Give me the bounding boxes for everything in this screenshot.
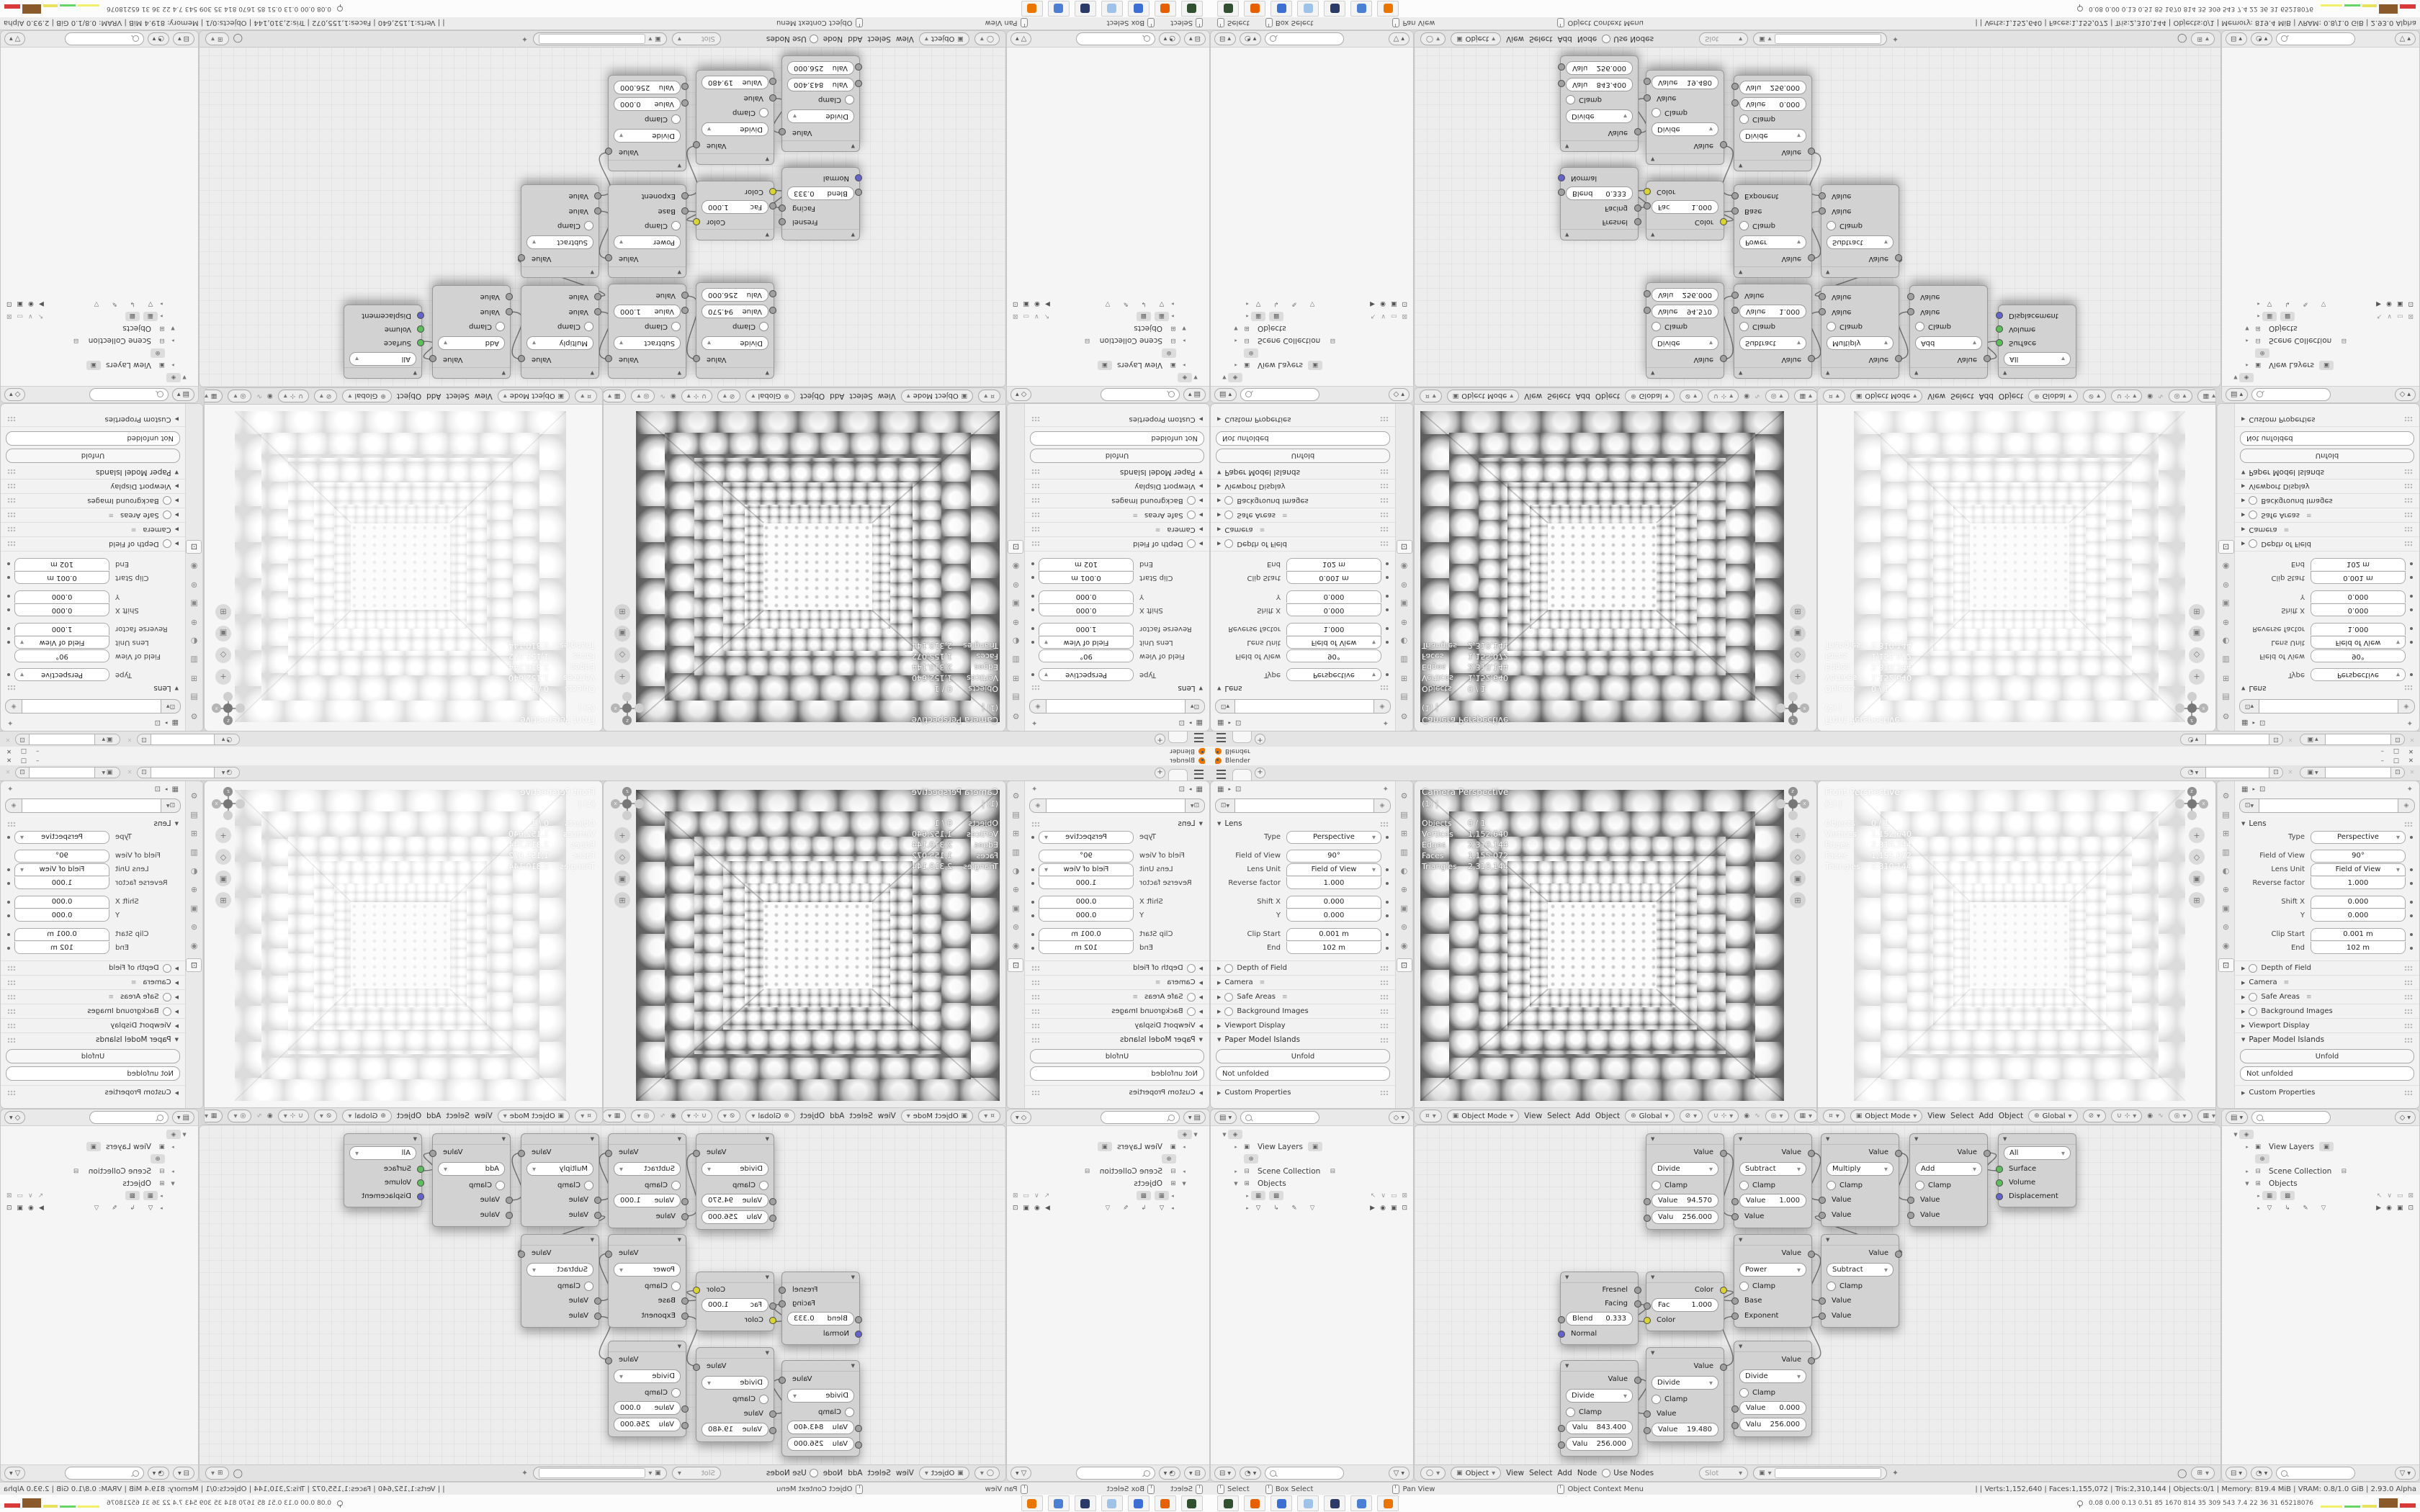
animate-dot-icon[interactable] <box>2410 595 2413 598</box>
animate-dot-icon[interactable] <box>1031 563 1034 566</box>
input-socket[interactable] <box>1907 308 1914 315</box>
editor-type-icon[interactable]: ▦ <box>1196 719 1203 727</box>
world-icon[interactable]: ⊕ <box>2219 883 2233 896</box>
cursor-icon[interactable]: ↖ <box>1044 1192 1050 1200</box>
datablock-name-field[interactable] <box>1046 699 1185 714</box>
axis-z-icon[interactable]: z <box>2187 716 2197 725</box>
unlink-scene-button[interactable]: ✕ <box>2285 734 2295 744</box>
output-socket[interactable] <box>694 142 701 149</box>
node-header[interactable]: ▼ <box>696 1348 774 1359</box>
input-socket[interactable] <box>1558 1441 1565 1449</box>
mode-dropdown[interactable]: ▣Object Mode▼ <box>498 1110 570 1122</box>
menu-node[interactable]: Node <box>1577 1469 1597 1477</box>
shader-type-dropdown[interactable]: ▣Object▼ <box>919 32 969 45</box>
property-field[interactable]: Field of View ▼ <box>2311 636 2406 649</box>
node-header[interactable]: ▼ <box>433 367 510 378</box>
collapsed-panel-header[interactable]: ▶ Safe Areas ≡ <box>1025 508 1209 523</box>
outliner-root-row[interactable]: ▼◈ <box>2222 372 2419 384</box>
unlink-scene-button[interactable]: ✕ <box>125 768 135 778</box>
mode-dropdown[interactable]: ▣Object Mode▼ <box>901 390 974 402</box>
falloff-icon[interactable]: ∿ <box>256 392 262 400</box>
view-layer-icon[interactable]: ▥ <box>1397 654 1412 666</box>
subtract-2-node[interactable]: ▼ Value Subtract▼ Clamp Value Value <box>1821 184 1899 278</box>
menu-view[interactable]: View <box>878 392 896 400</box>
volume-socket[interactable] <box>1996 325 2003 333</box>
menu-node[interactable]: Node <box>823 35 843 43</box>
output-icon[interactable]: ⊞ <box>1397 827 1412 840</box>
node-canvas[interactable]: ▼ Value Divide▼ Clamp Value94.570 Valu25… <box>1415 47 2220 387</box>
fac-field[interactable]: Fac1.000 <box>702 1298 768 1312</box>
camera-data-icon[interactable]: ⊡ <box>2218 540 2234 554</box>
color-output-socket[interactable] <box>694 1287 701 1294</box>
input-socket[interactable] <box>1644 94 1651 102</box>
animate-dot-icon[interactable] <box>1031 628 1034 631</box>
unfold-status-field[interactable]: Not unfolded <box>2240 1066 2414 1081</box>
add-workspace-button[interactable]: + <box>1255 768 1265 778</box>
axis-gizmo[interactable]: z x <box>2175 692 2208 725</box>
panel-drag-dots[interactable] <box>7 484 16 489</box>
chevron-icon[interactable]: ∨ <box>28 1192 33 1200</box>
panel-drag-dots[interactable] <box>1380 513 1389 518</box>
unlink-view-layer-button[interactable]: ✕ <box>2407 734 2417 744</box>
input-socket[interactable] <box>856 1425 863 1432</box>
eye-icon[interactable]: ◉ <box>28 301 34 308</box>
menu-object[interactable]: Object <box>397 1112 421 1120</box>
output-socket[interactable] <box>1808 1357 1815 1364</box>
camera-data-icon[interactable]: ⊡ <box>1008 540 1024 554</box>
output-socket[interactable] <box>1808 148 1815 156</box>
chevron-icon[interactable]: ∨ <box>1034 313 1039 320</box>
menu-select[interactable]: Select <box>1547 392 1570 400</box>
editor-type-dropdown[interactable]: ⊟▼ <box>173 32 194 45</box>
constraints-icon[interactable]: ◉ <box>1397 560 1412 572</box>
terminal-icon[interactable] <box>1181 1495 1203 1511</box>
panel-checkbox[interactable] <box>2249 497 2257 505</box>
property-field[interactable]: Field of View ▼ <box>14 863 109 876</box>
panel-drag-dots[interactable] <box>1031 484 1040 489</box>
copy-view-layer-button[interactable]: ⊡ <box>2391 734 2405 745</box>
pin-icon[interactable]: ✦ <box>1892 1469 1899 1477</box>
fac-field[interactable]: Fac1.000 <box>1652 200 1718 214</box>
input-socket[interactable] <box>770 1215 777 1222</box>
3d-viewport-front[interactable]: Front Perspective (1) | Objects 0 / 1 Ve… <box>1817 387 2216 732</box>
use-nodes-toggle[interactable]: Use Nodes <box>766 35 818 43</box>
property-field[interactable]: Field of View ▼ <box>1286 863 1381 876</box>
constraints-icon[interactable]: ◉ <box>1397 940 1412 952</box>
panel-drag-dots[interactable] <box>1031 417 1040 422</box>
pin-icon[interactable]: ✦ <box>521 35 528 43</box>
custom-properties-header[interactable]: ▶ Custom Properties <box>2235 1085 2419 1099</box>
menu-hamburger-icon[interactable] <box>1216 770 1226 779</box>
display-mode-dropdown[interactable]: ◔▼ <box>148 1467 169 1480</box>
output-socket[interactable] <box>1720 1364 1727 1371</box>
panel-drag-dots[interactable] <box>2404 417 2413 422</box>
clamp-checkbox[interactable] <box>1739 323 1749 332</box>
property-field[interactable]: 0.000 ▼ <box>1039 909 1134 922</box>
material-selector[interactable]: ▣▼ <box>533 32 667 45</box>
input-socket[interactable] <box>1731 307 1739 314</box>
snap-target-dropdown[interactable]: ⊘▼ <box>717 390 741 402</box>
property-field[interactable]: 102 m ▼ <box>1286 942 1381 954</box>
panel-drag-dots[interactable] <box>7 966 16 971</box>
chevron-icon[interactable]: ∨ <box>1381 1192 1386 1200</box>
node-header[interactable]: ▼ <box>1646 229 1724 240</box>
input-socket[interactable] <box>682 1405 689 1413</box>
collapsed-panel-header[interactable]: ▶ Viewport Display ≡ <box>2235 1018 2419 1032</box>
axis-gizmo[interactable]: z x <box>611 787 644 820</box>
input-socket[interactable] <box>856 1441 863 1449</box>
copy-scene-button[interactable]: ⊡ <box>2269 734 2283 745</box>
property-field[interactable]: 1.000 ▼ <box>1286 623 1381 635</box>
invert-node[interactable]: ▼ Color Fac1.000 Color <box>1646 1272 1724 1331</box>
operation-dropdown[interactable]: Add▼ <box>1915 336 1982 350</box>
input-socket[interactable] <box>856 80 863 87</box>
menu-object[interactable]: Object <box>1999 1112 2023 1120</box>
editor-type-icon[interactable]: ▦ <box>1217 719 1224 727</box>
power-1-node[interactable]: ▼ Value Power▼ Clamp Base Exponent <box>608 1234 686 1328</box>
copy-view-layer-button[interactable]: ⊡ <box>15 767 29 778</box>
viewport-canvas[interactable]: Camera Perspective (1) | Objects 0 / 1 V… <box>604 404 1005 731</box>
output-icon[interactable]: ⊞ <box>1009 672 1023 685</box>
multiply-1-node[interactable]: ▼ Value Multiply▼ Clamp Value Value <box>521 1133 599 1227</box>
overlays-dropdown[interactable]: ▦▼ <box>1794 390 1816 402</box>
collapsed-panel-header[interactable]: ▶ Viewport Display ≡ <box>1025 480 1209 494</box>
menu-view[interactable]: View <box>1524 392 1542 400</box>
outliner-search[interactable] <box>2251 1111 2331 1124</box>
objects-collection-row[interactable]: ▼⊞ Objects <box>1211 1177 1413 1189</box>
cursor-icon[interactable]: ↖ <box>2377 1192 2383 1200</box>
constraints-icon[interactable]: ◉ <box>2219 560 2233 572</box>
input-socket[interactable] <box>770 202 777 210</box>
panel-drag-dots[interactable] <box>2404 1038 2413 1043</box>
input-socket[interactable] <box>856 189 863 196</box>
tool-icon[interactable]: ⚙ <box>187 790 202 802</box>
workspace-tab[interactable] <box>1232 732 1252 743</box>
editor-type-dropdown[interactable]: ¤▼ <box>1823 1110 1845 1122</box>
clamp-checkbox[interactable] <box>496 1181 505 1190</box>
object-icon[interactable]: ▣ <box>1009 902 1023 914</box>
unlink-view-layer-button[interactable]: ✕ <box>3 734 13 744</box>
input-socket[interactable] <box>595 192 602 199</box>
divide-4-node[interactable]: ▼ Value Divide▼ Clamp Value0.000 Valu256… <box>1734 1341 1812 1437</box>
node-value-field[interactable]: Valu256.000 <box>702 288 768 302</box>
displacement-socket[interactable] <box>418 1193 425 1200</box>
axis-minus-icon[interactable] <box>224 692 233 701</box>
menu-view[interactable]: View <box>896 1469 914 1477</box>
objects-collection-row[interactable]: ▼⊞ Objects <box>2222 323 2419 335</box>
clamp-checkbox[interactable] <box>671 115 681 125</box>
gizmos-dropdown[interactable]: ◎▼ <box>228 1110 251 1122</box>
object-row[interactable]: ▸▦ ▩ ↖∨ ▭⊠ <box>1211 310 1413 323</box>
output-target-dropdown[interactable]: All ▼ <box>2004 352 2071 366</box>
clamp-checkbox[interactable] <box>759 323 768 332</box>
image-viewer-icon[interactable] <box>1350 1 1372 17</box>
input-socket[interactable] <box>1558 1425 1565 1432</box>
node-value-field[interactable]: Value1.000 <box>614 305 681 318</box>
snap-target-dropdown[interactable]: ⊘▼ <box>1680 390 1703 402</box>
tool-icon[interactable]: ⚙ <box>2219 790 2233 802</box>
axis-gizmo[interactable]: z x <box>212 692 245 725</box>
collapsed-panel-header[interactable]: ▶ Background Images ≡ <box>2235 1004 2419 1018</box>
object-icon[interactable]: ▣ <box>187 902 202 914</box>
outliner-search[interactable] <box>2251 388 2331 401</box>
world-row[interactable]: ⊕ <box>2222 1153 2419 1165</box>
paper-model-panel-header[interactable]: ▼ Paper Model Islands <box>1211 1032 1395 1046</box>
menu-add[interactable]: Add <box>848 35 862 43</box>
tool-icon[interactable]: ⚙ <box>2219 710 2233 722</box>
render-off-icon[interactable]: ⊠ <box>1402 313 1407 320</box>
collapsed-panel-header[interactable]: ▶ Camera ≡ <box>1211 523 1395 537</box>
node-header[interactable]: ▼ <box>1821 1134 1899 1145</box>
panel-checkbox[interactable] <box>2249 511 2257 520</box>
proportional-edit-icon[interactable]: ◉ <box>267 1112 273 1120</box>
screen-icon[interactable]: ▭ <box>2397 313 2403 320</box>
camera-view-icon[interactable]: ▣ <box>2189 626 2205 642</box>
animate-dot-icon[interactable] <box>7 933 10 936</box>
scene-icon[interactable]: ◐ <box>1009 635 1023 647</box>
axis-minus-icon[interactable] <box>623 811 632 820</box>
property-field[interactable]: 0.000 ▼ <box>1039 896 1134 909</box>
falloff-icon[interactable]: ∿ <box>1754 392 1760 400</box>
object-row[interactable]: ▸▦ ▩ ↖∨ ▭⊠ <box>1007 310 1209 323</box>
material-selector[interactable]: ▣▼ <box>533 1467 667 1480</box>
output-socket[interactable] <box>779 1300 786 1308</box>
menu-select[interactable]: Select <box>1547 1112 1570 1120</box>
object-row[interactable]: ▸▦ ▩ ↖∨ ▭⊠ <box>1 310 198 323</box>
panel-drag-dots[interactable] <box>1380 966 1389 971</box>
scene-selector[interactable]: ◔▼ ⊡ ✕ <box>2180 767 2295 778</box>
output-socket[interactable] <box>1895 1251 1902 1258</box>
input-socket[interactable] <box>595 1313 602 1320</box>
output-socket[interactable] <box>606 356 613 363</box>
output-socket[interactable] <box>1634 1287 1641 1294</box>
normal-input-socket[interactable] <box>856 1331 863 1338</box>
input-socket[interactable] <box>595 1297 602 1305</box>
input-socket[interactable] <box>770 1410 777 1418</box>
subtract-1-node[interactable]: ▼ Value Subtract▼ Clamp Value1.000 Value <box>608 284 686 379</box>
clamp-checkbox[interactable] <box>845 96 854 105</box>
animate-dot-icon[interactable] <box>7 674 10 677</box>
operation-dropdown[interactable]: Divide▼ <box>787 1389 854 1403</box>
panel-drag-dots[interactable] <box>1380 980 1389 985</box>
property-field[interactable]: 102 m ▼ <box>14 942 109 954</box>
constraints-icon[interactable]: ◉ <box>1009 940 1023 952</box>
input-socket[interactable] <box>1644 307 1651 314</box>
snap-circle-icon[interactable]: ◯ <box>233 1468 243 1478</box>
select-arrow-icon[interactable]: ▶ <box>1370 1205 1375 1212</box>
color-output-socket[interactable] <box>694 218 701 225</box>
screen-icon[interactable]: ▣ <box>2397 301 2403 308</box>
property-field[interactable]: 102 m ▼ <box>2311 558 2406 570</box>
unfold-status-field[interactable]: Not unfolded <box>6 1066 180 1081</box>
workspace-tab[interactable] <box>1232 769 1252 780</box>
panel-checkbox[interactable] <box>1224 497 1233 505</box>
snap-target-dropdown[interactable]: ⊘▼ <box>314 390 338 402</box>
operation-dropdown[interactable]: Subtract▼ <box>614 1162 681 1176</box>
chevron-icon[interactable]: ∨ <box>2387 1192 2392 1200</box>
animate-dot-icon[interactable] <box>1031 609 1034 612</box>
axis-minus-icon[interactable] <box>224 811 233 820</box>
mode-dropdown[interactable]: ▣Object Mode▼ <box>1850 390 1923 402</box>
world-icon[interactable]: ⊕ <box>1397 616 1412 629</box>
screen-icon[interactable]: ▣ <box>2397 1205 2403 1212</box>
collapsed-panel-header[interactable]: ▶ Safe Areas ≡ <box>1 989 185 1004</box>
orientation-dropdown[interactable]: ⊕Global▼ <box>1625 390 1674 402</box>
node-value-field[interactable]: Value1.000 <box>1739 305 1806 318</box>
snap-magnet-toggle[interactable]: ∪⊹▼ <box>278 390 309 402</box>
zoom-icon[interactable]: + <box>215 827 231 843</box>
lens-panel-header[interactable]: ▼ Lens <box>2235 682 2419 695</box>
view-layers-row[interactable]: ▸▣ View Layers ▣ <box>1 359 198 372</box>
input-socket[interactable] <box>1731 207 1739 215</box>
operation-dropdown[interactable]: Divide▼ <box>614 129 681 143</box>
camera-icon[interactable]: ⊡ <box>1402 301 1407 308</box>
node-value-field[interactable]: Valu256.000 <box>787 1437 854 1451</box>
tool-icon[interactable]: ⚙ <box>1397 790 1412 802</box>
view-layer-selector[interactable]: ▣▼ ⊡ ✕ <box>3 734 120 745</box>
divide-2-node[interactable]: ▼ Value Divide▼ Clamp Valu843.400 Valu25… <box>781 1360 860 1457</box>
node-value-field[interactable]: Value0.000 <box>1739 97 1806 111</box>
select-arrow-icon[interactable]: ▶ <box>1045 301 1050 308</box>
lens-panel-header[interactable]: ▼ Lens <box>1025 817 1209 830</box>
collapsed-panel-header[interactable]: ▶ Background Images ≡ <box>1211 1004 1395 1018</box>
orientation-dropdown[interactable]: ⊕Global▼ <box>745 1110 794 1122</box>
camera-view-icon[interactable]: ▣ <box>614 626 630 642</box>
unfold-button[interactable]: Unfold <box>6 1049 180 1063</box>
clamp-checkbox[interactable] <box>1652 109 1661 118</box>
panel-drag-dots[interactable] <box>7 417 16 422</box>
surface-socket[interactable] <box>1996 1166 2003 1173</box>
animate-dot-icon[interactable] <box>1031 933 1034 936</box>
panel-drag-dots[interactable] <box>2404 1023 2413 1028</box>
menu-object[interactable]: Object <box>800 392 825 400</box>
editor-type-dropdown[interactable]: ¤▼ <box>1420 390 1442 402</box>
input-socket[interactable] <box>682 307 689 314</box>
animate-dot-icon[interactable] <box>1386 914 1389 917</box>
invert-node[interactable]: ▼ Color Fac1.000 Color <box>1646 181 1724 240</box>
notepad-icon[interactable] <box>1101 1495 1123 1511</box>
slot-dropdown[interactable]: Slot▼ <box>1699 32 1748 45</box>
view-layer-icon[interactable]: ▥ <box>1009 846 1023 858</box>
zoom-icon[interactable]: + <box>614 669 630 685</box>
panel-checkbox[interactable] <box>2249 1007 2257 1016</box>
grid-toggle-icon[interactable]: ⊞ <box>2189 604 2205 620</box>
editor-type-dropdown[interactable]: ◯▼ <box>1420 32 1446 45</box>
input-socket[interactable] <box>1731 1297 1739 1305</box>
unlink-scene-button[interactable]: ✕ <box>125 734 135 744</box>
zoom-icon[interactable]: + <box>1790 827 1806 843</box>
camera-data-icon[interactable]: ⊡ <box>187 540 202 554</box>
proportional-edit-icon[interactable]: ◉ <box>671 1112 676 1120</box>
input-socket[interactable] <box>770 94 777 102</box>
display-mode-dropdown[interactable]: ◔▼ <box>1159 1467 1180 1480</box>
subtract-2-node[interactable]: ▼ Value Subtract▼ Clamp Value Value <box>521 1234 599 1328</box>
proportional-edit-icon[interactable]: ◉ <box>2147 1112 2153 1120</box>
eye-icon[interactable]: ◉ <box>1380 301 1386 308</box>
property-field[interactable]: 102 m ▼ <box>1039 558 1134 570</box>
editor-type-dropdown[interactable]: ◯▼ <box>974 1467 1000 1480</box>
editor-type-icon[interactable]: ▦ <box>172 786 179 793</box>
animate-dot-icon[interactable] <box>2410 836 2413 839</box>
output-socket[interactable] <box>606 255 613 262</box>
divide-3-node[interactable]: ▼ Value Divide▼ Clamp Value Value19.480 <box>696 70 774 165</box>
shader-node-editor[interactable]: ▼ Value Divide▼ Clamp Value94.570 Valu25… <box>199 1125 1006 1482</box>
editor-type-dropdown[interactable]: ¤▼ <box>1420 1110 1442 1122</box>
object-row[interactable]: ▸▦ ▩ ↖∨ ▭⊠ <box>1 1189 198 1202</box>
panel-drag-dots[interactable] <box>7 1090 16 1095</box>
mode-dropdown[interactable]: ▣Object Mode▼ <box>1447 1110 1520 1122</box>
property-field[interactable]: 0.000 ▼ <box>2311 604 2406 617</box>
camera-icon[interactable]: ⊡ <box>6 301 12 308</box>
clamp-checkbox[interactable] <box>1652 1395 1661 1404</box>
output-socket[interactable] <box>1808 1251 1815 1258</box>
input-socket[interactable] <box>595 1212 602 1219</box>
eye-icon[interactable]: ◉ <box>28 1205 34 1212</box>
viewport-canvas[interactable]: Front Perspective (1) | Objects 0 / 1 Ve… <box>1818 404 2215 731</box>
input-socket[interactable] <box>1644 1410 1651 1418</box>
output-socket[interactable] <box>779 129 786 136</box>
objects-collection-row[interactable]: ▼⊞ Objects <box>1 323 198 335</box>
file-manager-icon[interactable] <box>1324 1 1345 17</box>
property-field[interactable]: 90° ▼ <box>2311 850 2406 863</box>
divide-3-node[interactable]: ▼ Value Divide▼ Clamp Value Value19.480 <box>1646 1347 1724 1442</box>
property-field[interactable]: 0.000 ▼ <box>2311 896 2406 909</box>
output-socket[interactable] <box>1720 1150 1727 1157</box>
editor-type-dropdown[interactable]: ⊟▼ <box>1214 32 1236 45</box>
animate-dot-icon[interactable] <box>7 595 10 598</box>
panel-checkbox[interactable] <box>163 1007 171 1016</box>
fake-user-shield-icon[interactable]: ◈ <box>1029 798 1046 813</box>
camera-icon[interactable]: ⊡ <box>1013 301 1018 308</box>
panel-checkbox[interactable] <box>1224 964 1233 973</box>
output-socket[interactable] <box>430 356 437 363</box>
unfold-button[interactable]: Unfold <box>1216 1049 1390 1063</box>
output-icon[interactable]: ⊞ <box>2219 672 2233 685</box>
object-row[interactable]: ▸▦ ▩ ↖∨ ▭⊠ <box>1211 1189 1413 1202</box>
panel-checkbox[interactable] <box>2249 540 2257 549</box>
output-icon[interactable]: ⊞ <box>187 672 202 685</box>
panel-drag-dots[interactable] <box>1380 1038 1389 1043</box>
scene-icon[interactable]: ◐ <box>1009 865 1023 877</box>
input-socket[interactable] <box>1644 202 1651 210</box>
output-socket[interactable] <box>519 255 526 262</box>
axis-gizmo[interactable]: z x <box>1776 787 1809 820</box>
gizmos-dropdown[interactable]: ◎▼ <box>228 390 251 402</box>
grid-toggle-icon[interactable]: ⊞ <box>2189 892 2205 908</box>
panel-checkbox[interactable] <box>163 511 171 520</box>
minimize-button[interactable]: – <box>2381 757 2384 765</box>
panel-drag-dots[interactable] <box>1031 513 1040 518</box>
editor-type-icon[interactable]: ▦ <box>1217 786 1224 793</box>
object-icon[interactable]: ▣ <box>187 598 202 610</box>
editor-type-icon[interactable]: ▦ <box>1196 786 1203 793</box>
input-socket[interactable] <box>1644 1427 1651 1434</box>
axis-x-icon[interactable]: x <box>611 704 620 714</box>
camera-data-icon[interactable]: ⊡ <box>1008 958 1024 972</box>
filter-dropdown[interactable]: ◇▼ <box>4 388 25 401</box>
operation-dropdown[interactable]: Multiply▼ <box>526 1162 593 1176</box>
menu-select[interactable]: Select <box>1529 1469 1552 1477</box>
proportional-edit-icon[interactable]: ◉ <box>1744 392 1749 400</box>
panel-checkbox[interactable] <box>1187 1007 1196 1016</box>
menu-node[interactable]: Node <box>823 1469 843 1477</box>
animate-dot-icon[interactable] <box>1031 836 1034 839</box>
snap-grid-dropdown[interactable]: ⊞▼ <box>2191 32 2215 45</box>
output-socket[interactable] <box>606 148 613 156</box>
view-layers-row[interactable]: ▸▣ View Layers ▣ <box>1007 1140 1209 1153</box>
node-header[interactable]: ▼ <box>433 1134 510 1145</box>
scene-name-field[interactable] <box>2206 734 2269 745</box>
